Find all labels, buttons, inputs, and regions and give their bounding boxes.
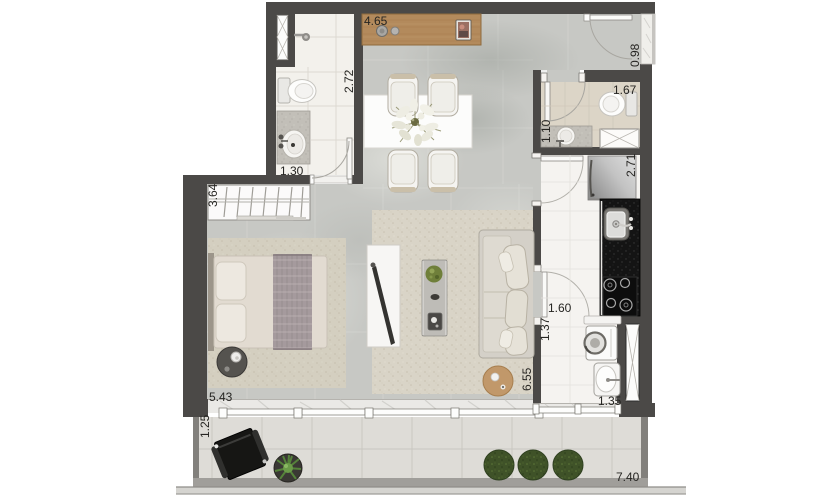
svg-text:2.72: 2.72 (342, 69, 356, 93)
svg-text:3.64: 3.64 (206, 183, 220, 207)
svg-text:1.67: 1.67 (613, 83, 637, 97)
svg-text:1.60: 1.60 (548, 301, 572, 315)
svg-text:1.30: 1.30 (280, 164, 304, 178)
svg-text:2.71: 2.71 (624, 153, 638, 177)
svg-text:7.40: 7.40 (616, 470, 640, 484)
svg-text:1.37: 1.37 (538, 317, 552, 341)
svg-text:0.98: 0.98 (628, 43, 642, 67)
svg-text:1.25: 1.25 (198, 414, 212, 438)
svg-text:6.55: 6.55 (520, 367, 534, 391)
svg-text:1.10: 1.10 (539, 119, 553, 143)
svg-text:1.35: 1.35 (598, 394, 622, 408)
svg-text:5.43: 5.43 (209, 390, 233, 404)
svg-text:4.65: 4.65 (364, 14, 388, 28)
